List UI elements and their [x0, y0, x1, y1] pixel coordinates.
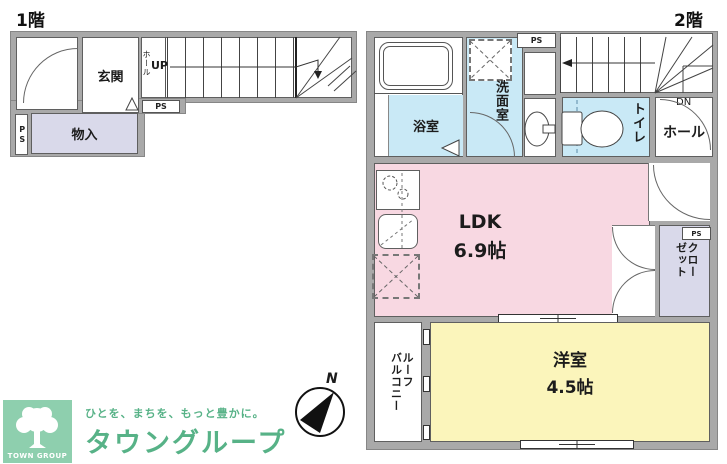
room-bathroom: 浴室: [388, 95, 463, 156]
bathroom-label: 浴室: [413, 116, 439, 135]
ldk-name: LDK: [420, 208, 540, 237]
compass-needle: [300, 392, 334, 433]
compass-circle: [296, 388, 344, 436]
ldk-size: 6.9帖: [420, 237, 540, 266]
ldk-label: LDK 6.9帖: [420, 208, 540, 267]
ps-box-closet-label: PS: [691, 230, 701, 238]
kitchen-counter: [376, 170, 420, 210]
brand-company-name: タウングループ: [85, 421, 286, 460]
kitchen-sink: [378, 214, 418, 249]
refrigerator-space: [372, 254, 420, 299]
ps-box-closet: PS: [682, 227, 711, 240]
brand-tagline: ひとを、まちを、もっと豊かに。: [85, 405, 265, 421]
ps-box-1f: PS: [142, 100, 180, 113]
balcony-window-2: [423, 376, 430, 392]
stairs-1f-landing-line: [295, 37, 297, 98]
ps-side-1f: PS: [15, 114, 28, 155]
stairs-1f-treads: [167, 37, 296, 98]
ps-box-2f-top-label: PS: [531, 36, 543, 45]
bathtub: [379, 42, 453, 90]
hall-1f-label: ホール: [139, 50, 150, 90]
toilet-label: トイレ: [626, 102, 644, 154]
genkan-label: 玄関: [97, 66, 123, 85]
storage-label: 物入: [71, 124, 97, 143]
tree-icon: [3, 402, 72, 452]
ps-box-1f-label: PS: [155, 102, 167, 111]
compass-north-label: N: [326, 371, 338, 387]
western-label: 洋室 4.5帖: [495, 348, 645, 402]
logo-text: TOWN GROUP: [3, 452, 72, 460]
balcony-window-3: [423, 425, 430, 440]
balcony-window-1: [423, 329, 430, 345]
town-group-logo: TOWN GROUP: [3, 400, 72, 463]
room-genkan: 玄関: [82, 37, 139, 113]
balcony-label: ルーフ バルコニー: [379, 352, 413, 430]
up-label: UP: [151, 59, 168, 72]
floor1-title: 1階: [16, 6, 45, 31]
room-storage: 物入: [31, 113, 138, 154]
bath-partition-line: [374, 93, 463, 94]
stairs-2f-treads: [560, 37, 656, 93]
western-size: 4.5帖: [495, 375, 645, 402]
ps-box-2f-top: PS: [517, 33, 556, 48]
floorplan-image: 1階 2階 玄関 ホール UP PS PS 物入 浴室 洗面室 PS トイレ ホ…: [0, 0, 727, 464]
ps-side-1f-label: PS: [17, 125, 25, 145]
western-name: 洋室: [495, 348, 645, 375]
closet-label: クロー ゼット: [664, 242, 698, 308]
window-western-south: [520, 440, 634, 449]
floor2-title: 2階: [674, 6, 703, 31]
vanity-unit: [524, 98, 556, 157]
washroom-counter: [524, 52, 556, 95]
washing-machine-space: [469, 39, 512, 81]
